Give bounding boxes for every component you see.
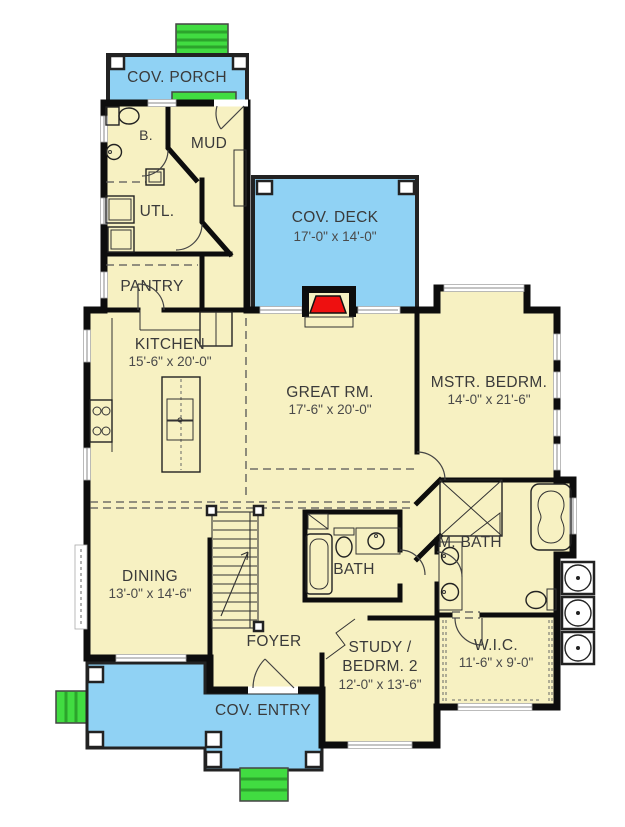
study-label-line2: BEDRM. 2	[342, 658, 418, 675]
pantry-label: PANTRY	[120, 278, 183, 295]
mud-label: MUD	[191, 135, 227, 152]
fan-hub	[576, 646, 580, 650]
kitchen-label: KITCHEN	[135, 336, 205, 353]
room-cov-porch: COV. PORCH	[127, 69, 227, 86]
wic-dims: 11'-6" x 9'-0"	[459, 655, 534, 670]
mstr-bedrm-label: MSTR. BEDRM.	[431, 374, 547, 391]
bath-label: BATH	[333, 561, 374, 578]
wic-label: W.I.C.	[474, 637, 518, 654]
room-bath: BATH	[333, 561, 374, 578]
cov-deck-dims: 17'-0" x 14'-0"	[293, 229, 376, 244]
room-kitchen: KITCHEN 15'-6" x 20'-0"	[128, 336, 211, 369]
m-bath-label: M. BATH	[438, 534, 502, 551]
fan-hub	[576, 576, 580, 580]
cov-deck-label: COV. DECK	[292, 209, 379, 226]
cov-entry-label: COV. ENTRY	[215, 702, 311, 719]
great-rm-dims: 17'-6" x 20'-0"	[288, 402, 371, 417]
mud-door-gap	[214, 100, 248, 107]
porch-column	[233, 56, 247, 69]
room-utl: UTL.	[140, 203, 175, 220]
study-dims: 12'-0" x 13'-6"	[338, 677, 421, 692]
equipment-pads	[562, 562, 594, 664]
entry-column	[206, 752, 221, 767]
room-pantry: PANTRY	[120, 278, 183, 295]
room-mud: MUD	[191, 135, 227, 152]
dining-label: DINING	[122, 568, 178, 585]
porch-column	[110, 56, 124, 69]
room-cov-entry: COV. ENTRY	[215, 702, 311, 719]
cov-porch-label: COV. PORCH	[127, 69, 227, 86]
study-label-line1: STUDY /	[349, 639, 412, 656]
room-study: STUDY / BEDRM. 2 12'-0" x 13'-6"	[338, 639, 421, 692]
great-rm-label: GREAT RM.	[286, 384, 373, 401]
entry-side-steps	[56, 691, 87, 723]
firebox	[310, 296, 346, 313]
room-b: B.	[139, 127, 153, 143]
newel-post	[254, 506, 263, 515]
foyer-label: FOYER	[247, 633, 302, 650]
entry-column	[306, 752, 321, 767]
deck-column	[399, 181, 414, 194]
fan-hub	[576, 611, 580, 615]
b-label: B.	[139, 127, 153, 143]
entry-column	[206, 732, 221, 747]
mstr-bedrm-dims: 14'-0" x 21'-6"	[447, 392, 530, 407]
deck-column	[257, 181, 272, 194]
dining-dims: 13'-0" x 14'-6"	[108, 586, 191, 601]
room-great-rm: GREAT RM. 17'-6" x 20'-0"	[286, 384, 373, 417]
utl-label: UTL.	[140, 203, 175, 220]
entry-front-steps	[240, 768, 288, 801]
floor-plan-canvas: COV. PORCH B. MUD UTL. PANTRY KITCHEN 15…	[0, 0, 625, 827]
newel-post	[254, 622, 263, 631]
floor-plan-page: COV. PORCH B. MUD UTL. PANTRY KITCHEN 15…	[0, 0, 625, 827]
covered-porch	[108, 24, 247, 103]
newel-post	[207, 506, 216, 515]
room-mstr-bedrm: MSTR. BEDRM. 14'-0" x 21'-6"	[431, 374, 547, 407]
room-foyer: FOYER	[247, 633, 302, 650]
front-door-gap	[248, 687, 298, 694]
entry-column	[88, 732, 103, 747]
kitchen-dims: 15'-6" x 20'-0"	[128, 354, 211, 369]
entry-column	[88, 667, 103, 682]
room-m-bath: M. BATH	[438, 534, 502, 551]
